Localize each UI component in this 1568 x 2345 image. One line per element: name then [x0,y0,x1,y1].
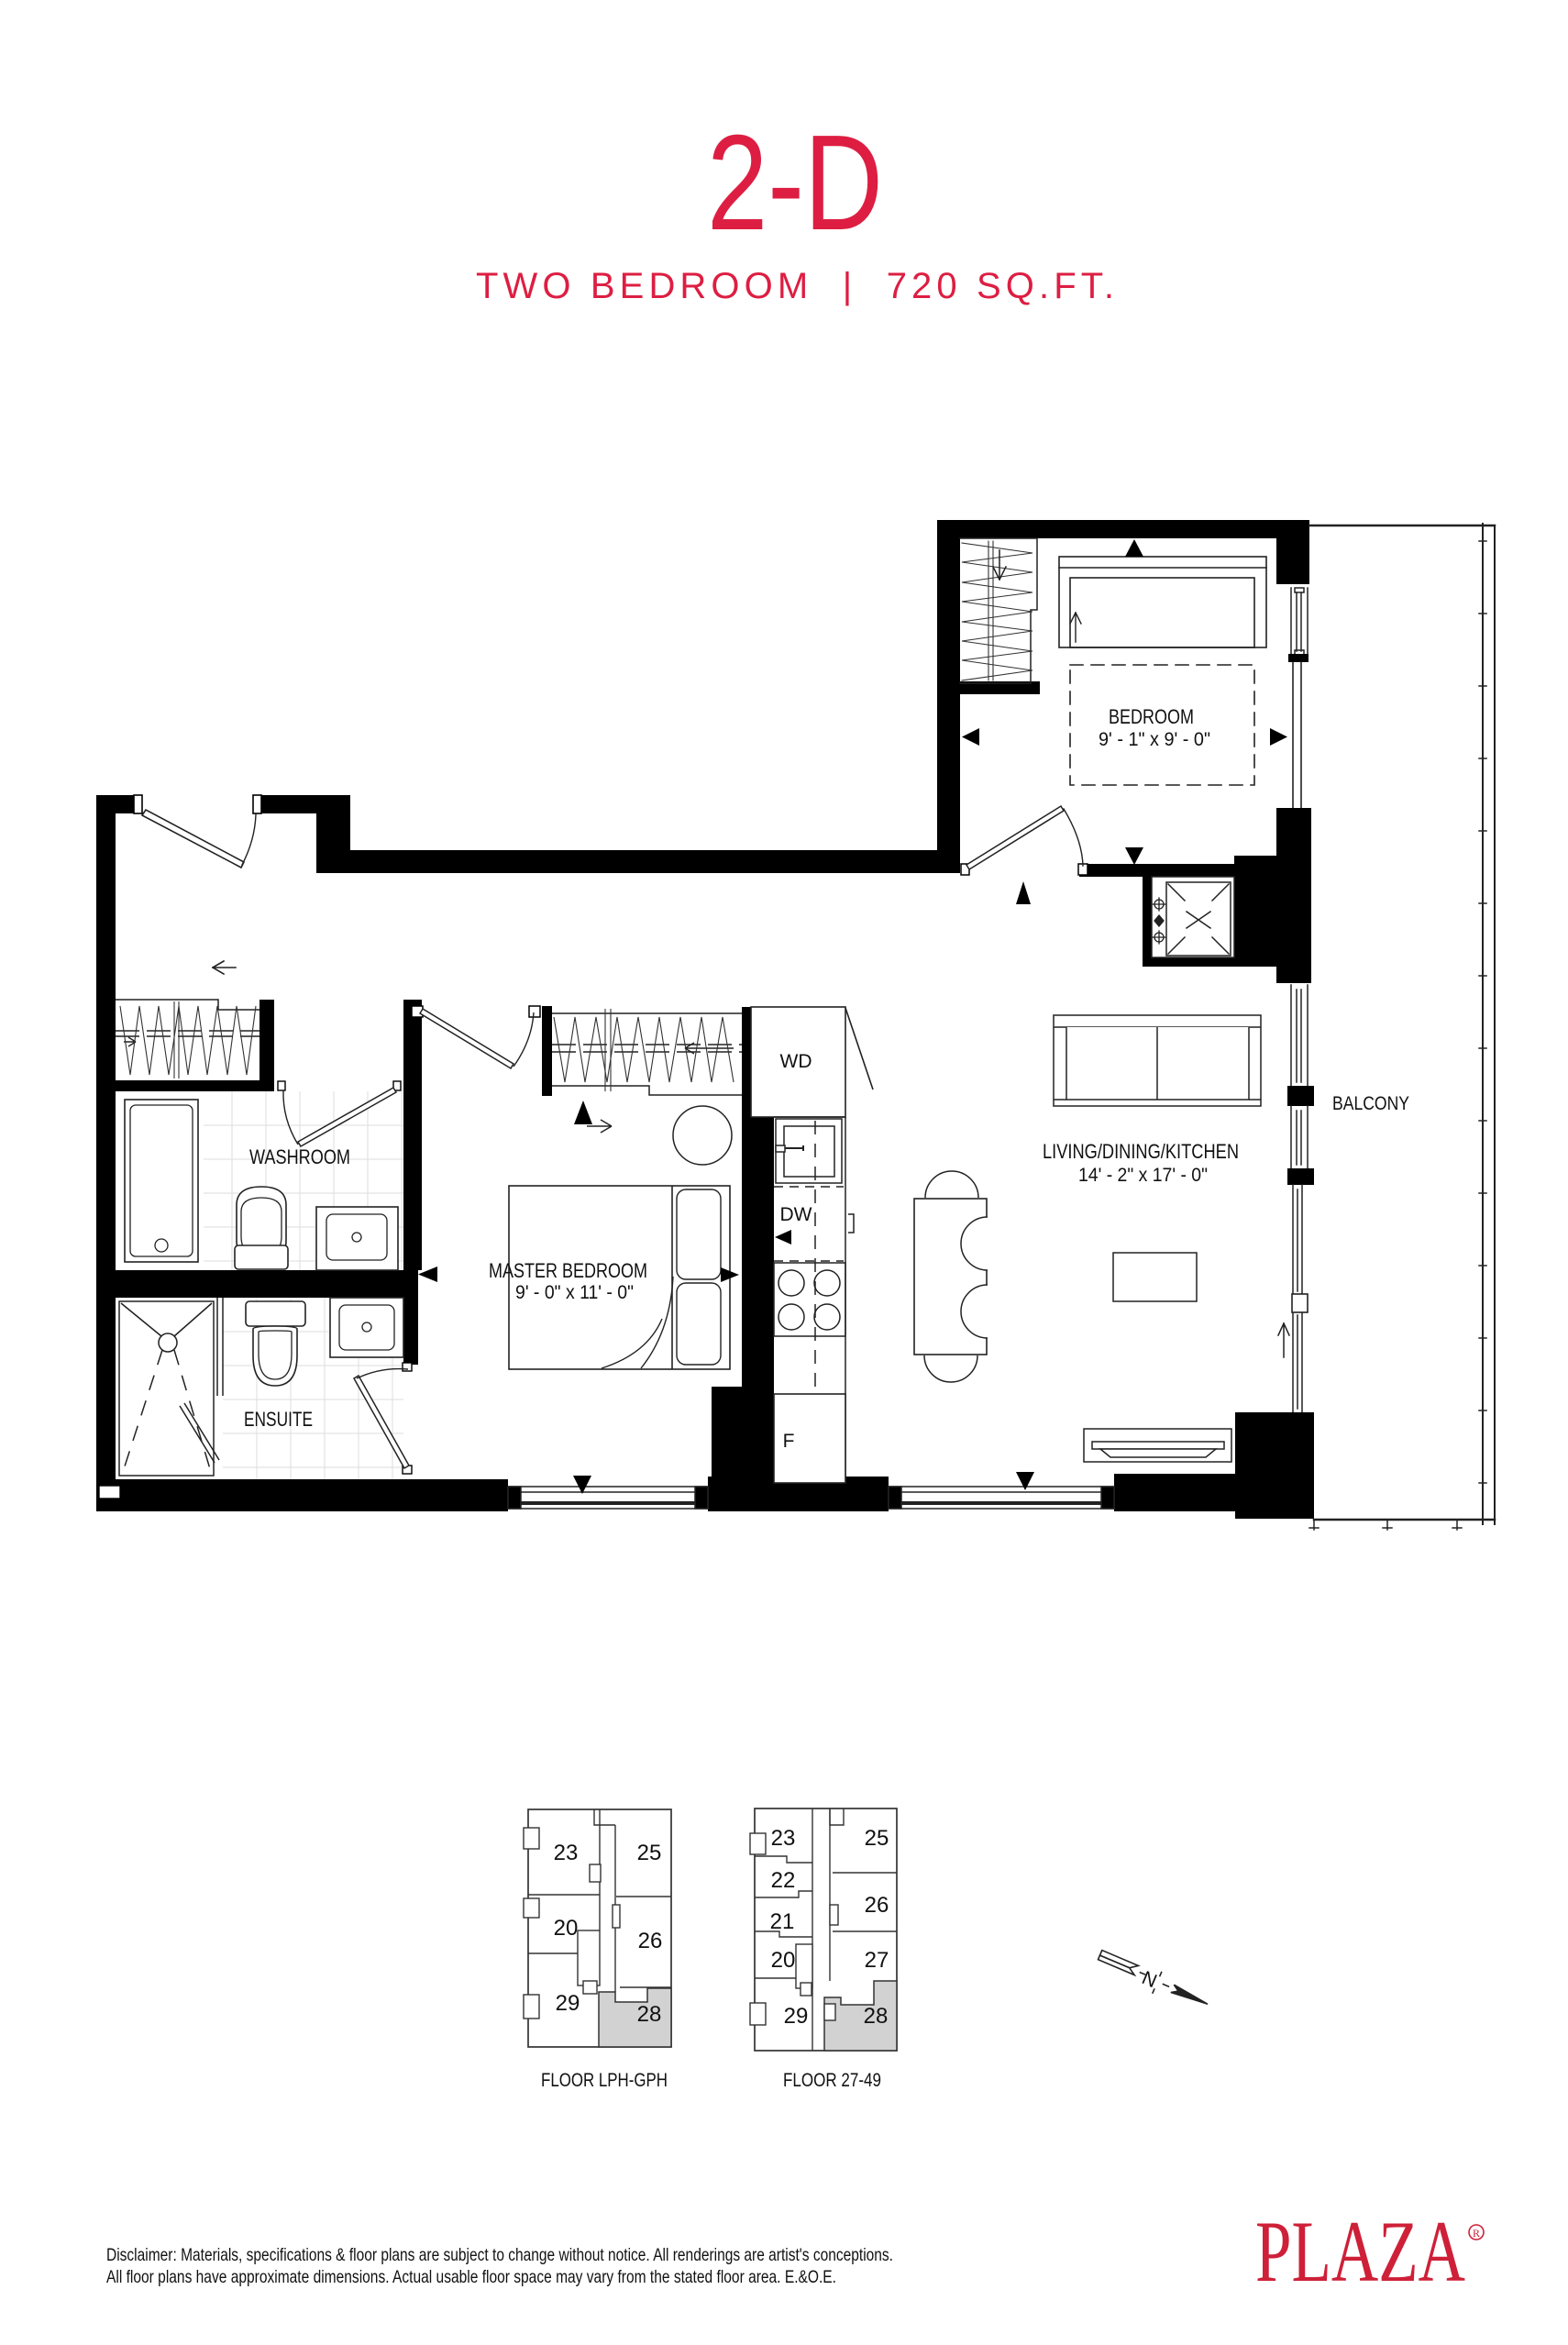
svg-text:28: 28 [637,2002,662,2027]
svg-text:26: 26 [638,1929,663,1953]
svg-text:R: R [1473,2227,1480,2240]
svg-text:14' - 2" x 17' - 0": 14' - 2" x 17' - 0" [1078,1165,1208,1186]
svg-text:ENSUITE: ENSUITE [244,1408,313,1431]
svg-text:WASHROOM: WASHROOM [249,1145,350,1168]
svg-text:2-D: 2-D [707,107,883,259]
svg-text:F: F [783,1431,795,1452]
svg-text:26: 26 [865,1893,889,1918]
svg-text:27: 27 [865,1948,889,1973]
svg-text:WD: WD [780,1051,812,1072]
svg-text:9' - 1" x 9' - 0": 9' - 1" x 9' - 0" [1099,729,1210,750]
svg-text:29: 29 [784,2004,809,2029]
svg-text:23: 23 [771,1826,796,1851]
svg-text:BEDROOM: BEDROOM [1109,705,1194,728]
svg-text:20: 20 [771,1948,796,1973]
svg-text:20: 20 [554,1916,579,1941]
svg-text:FLOOR 27-49: FLOOR 27-49 [783,2070,881,2091]
svg-text:Disclaimer: Materials, specifi: Disclaimer: Materials, specifications & … [106,2245,893,2265]
svg-text:25: 25 [637,1841,662,1865]
svg-text:BALCONY: BALCONY [1332,1093,1409,1114]
svg-text:22: 22 [771,1868,796,1893]
svg-text:28: 28 [864,2004,889,2029]
svg-text:29: 29 [556,1991,580,2016]
svg-text:All floor plans have approxima: All floor plans have approximate dimensi… [106,2267,836,2287]
svg-text:21: 21 [770,1909,795,1934]
svg-text:9' - 0" x 11' - 0": 9' - 0" x 11' - 0" [515,1282,634,1303]
svg-text:MASTER BEDROOM: MASTER BEDROOM [489,1259,647,1282]
svg-text:DW: DW [780,1204,812,1225]
svg-text:PLAZA: PLAZA [1255,2203,1465,2300]
svg-text:23: 23 [554,1841,579,1865]
svg-text:LIVING/DINING/KITCHEN: LIVING/DINING/KITCHEN [1043,1140,1239,1163]
svg-text:FLOOR LPH-GPH: FLOOR LPH-GPH [541,2070,668,2091]
svg-text:25: 25 [865,1826,889,1851]
